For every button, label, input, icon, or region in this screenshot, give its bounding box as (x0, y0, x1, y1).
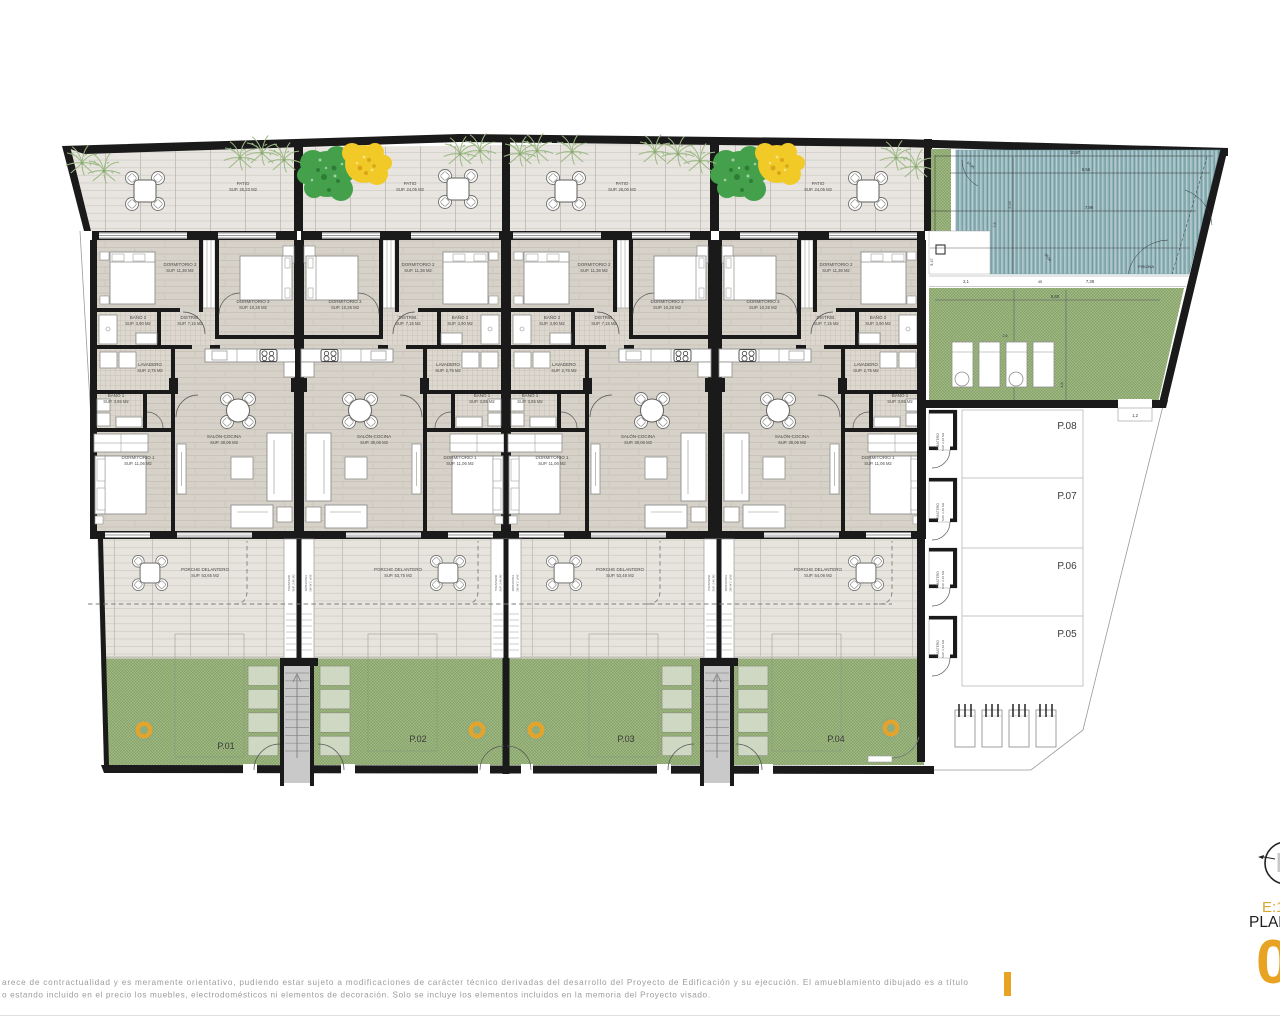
svg-text:BAÑO 1: BAÑO 1 (522, 392, 539, 398)
svg-text:P.06: P.06 (1057, 561, 1077, 572)
svg-text:SUP. 24,05 M2: SUP. 24,05 M2 (804, 187, 833, 192)
svg-text:DORMITORIO 3: DORMITORIO 3 (329, 299, 362, 304)
svg-text:BAÑO 1: BAÑO 1 (474, 392, 491, 398)
svg-text:SUP. 3,90 M2: SUP. 3,90 M2 (865, 321, 891, 326)
svg-text:TRASTERO: TRASTERO (287, 574, 291, 591)
svg-text:PATIO: PATIO (237, 181, 250, 186)
svg-text:SALÓN-COCINA: SALÓN-COCINA (207, 433, 241, 439)
svg-text:7,6: 7,6 (993, 222, 997, 227)
svg-text:SUP. 3,90 M2: SUP. 3,90 M2 (125, 321, 151, 326)
svg-text:BAÑO 1: BAÑO 1 (892, 392, 909, 398)
svg-text:SUP. 7,15 M2: SUP. 7,15 M2 (813, 321, 839, 326)
svg-text:SUP. 10,26 M2: SUP. 10,26 M2 (653, 305, 682, 310)
svg-text:SUP. 11,06 M2: SUP. 11,06 M2 (538, 461, 566, 466)
svg-text:PORCHE DELANTERO: PORCHE DELANTERO (374, 567, 423, 572)
svg-text:TRASTERO: TRASTERO (936, 640, 940, 658)
svg-text:SUP. 30,06 M2: SUP. 30,06 M2 (210, 440, 239, 445)
svg-text:4,6: 4,6 (1060, 382, 1064, 387)
svg-text:SUP. 2,75 M2: SUP. 2,75 M2 (853, 368, 879, 373)
svg-text:PORCHE DELANTERO: PORCHE DELANTERO (181, 567, 230, 572)
svg-text:SALÓN-COCINA: SALÓN-COCINA (775, 433, 809, 439)
svg-text:DISTRIB.: DISTRIB. (398, 315, 417, 320)
svg-text:SUP. 7,15 M2: SUP. 7,15 M2 (177, 321, 203, 326)
svg-text:BAÑO 2: BAÑO 2 (870, 314, 887, 320)
svg-text:SALÓN-COCINA: SALÓN-COCINA (621, 433, 655, 439)
svg-text:BAÑO 2: BAÑO 2 (452, 314, 469, 320)
svg-text:SUP. 53,48 M2: SUP. 53,48 M2 (606, 573, 635, 578)
svg-text:TRASTERO: TRASTERO (494, 574, 498, 591)
svg-text:SUP. 11,36 M2: SUP. 11,36 M2 (404, 268, 432, 273)
svg-text:DISTRIB.: DISTRIB. (180, 315, 199, 320)
svg-text:LAVADERO: LAVADERO (436, 362, 460, 367)
svg-text:DORMITORIO 3: DORMITORIO 3 (651, 299, 684, 304)
svg-text:SUP. 54,06 M2: SUP. 54,06 M2 (804, 573, 833, 578)
svg-text:DORMITORIO 2: DORMITORIO 2 (820, 262, 853, 267)
svg-text:45: 45 (1038, 280, 1042, 284)
svg-text:TRASTERO: TRASTERO (936, 503, 940, 521)
svg-text:SUP. 11,36 M2: SUP. 11,36 M2 (166, 268, 194, 273)
svg-text:PATIO: PATIO (404, 181, 417, 186)
svg-text:SUP. 2,40 M2: SUP. 2,40 M2 (712, 574, 716, 591)
svg-text:DORMITORIO 3: DORMITORIO 3 (747, 299, 780, 304)
svg-text:SUP. 2,40 M2: SUP. 2,40 M2 (941, 433, 945, 452)
svg-text:SUP. 53,75 M2: SUP. 53,75 M2 (384, 573, 413, 578)
svg-text:SUP. 2,40 M2: SUP. 2,40 M2 (292, 574, 296, 591)
svg-text:o estando incluido en el preci: o estando incluido en el precio los mueb… (2, 991, 710, 1000)
svg-text:DORMITORIO 2: DORMITORIO 2 (578, 262, 611, 267)
svg-text:SUP. 30,06 M2: SUP. 30,06 M2 (360, 440, 389, 445)
svg-text:SUP. 10,26 M2: SUP. 10,26 M2 (239, 305, 268, 310)
svg-text:BAÑO 1: BAÑO 1 (108, 392, 125, 398)
svg-text:10,87: 10,87 (1070, 150, 1081, 155)
svg-text:SUP. 53,65 M2: SUP. 53,65 M2 (191, 573, 220, 578)
svg-text:DISTRIB.: DISTRIB. (816, 315, 835, 320)
svg-text:SALÓN-COCINA: SALÓN-COCINA (357, 433, 391, 439)
svg-text:P.07: P.07 (1057, 491, 1077, 502)
svg-text:SUP. 3,65 M2: SUP. 3,65 M2 (887, 399, 913, 404)
svg-text:SUP. 30,06 M2: SUP. 30,06 M2 (778, 440, 807, 445)
svg-text:TRASTERO: TRASTERO (936, 571, 940, 589)
svg-text:SUP. 3,65 M2: SUP. 3,65 M2 (469, 399, 495, 404)
svg-text:SUP. 2,75 M2: SUP. 2,75 M2 (435, 368, 461, 373)
svg-text:SUP. 2,40 M2: SUP. 2,40 M2 (941, 503, 945, 522)
svg-text:DORMITORIO 2: DORMITORIO 2 (402, 262, 435, 267)
svg-text:BAÑO 2: BAÑO 2 (130, 314, 147, 320)
svg-text:SUP. 26,00 M2: SUP. 26,00 M2 (608, 187, 637, 192)
svg-text:PISCINA: PISCINA (1138, 264, 1154, 269)
svg-text:2,1: 2,1 (963, 279, 969, 284)
svg-text:TRASTERO: TRASTERO (304, 575, 308, 592)
svg-text:SUP. 11,06 M2: SUP. 11,06 M2 (864, 461, 892, 466)
svg-text:DORMITORIO 2: DORMITORIO 2 (164, 262, 197, 267)
svg-text:DORMITORIO 1: DORMITORIO 1 (536, 455, 569, 460)
svg-text:SUP. 3,65 M2: SUP. 3,65 M2 (103, 399, 129, 404)
svg-text:9,55: 9,55 (1082, 167, 1091, 172)
svg-text:P.02: P.02 (409, 734, 426, 744)
svg-text:LAVADERO: LAVADERO (552, 362, 576, 367)
svg-text:P.01: P.01 (217, 741, 234, 751)
svg-text:PATIO: PATIO (812, 181, 825, 186)
svg-text:P.03: P.03 (617, 734, 634, 744)
svg-text:SUP. 11,06 M2: SUP. 11,06 M2 (446, 461, 474, 466)
svg-text:TRASTERO: TRASTERO (724, 575, 728, 592)
svg-text:SUP. 3,65 M2: SUP. 3,65 M2 (517, 399, 543, 404)
svg-text:DORMITORIO 1: DORMITORIO 1 (444, 455, 477, 460)
svg-text:TRASTERO: TRASTERO (511, 575, 515, 592)
svg-text:DORMITORIO 1: DORMITORIO 1 (862, 455, 895, 460)
svg-text:2,6: 2,6 (1003, 334, 1008, 338)
svg-text:PORCHE DELANTERO: PORCHE DELANTERO (794, 567, 843, 572)
svg-text:7,99: 7,99 (1085, 205, 1094, 210)
svg-text:TRASTERO: TRASTERO (936, 433, 940, 451)
svg-text:SUP. 11,06 M2: SUP. 11,06 M2 (124, 461, 152, 466)
svg-text:SUP. 24,05 M2: SUP. 24,05 M2 (396, 187, 425, 192)
svg-text:DORMITORIO 3: DORMITORIO 3 (237, 299, 270, 304)
svg-text:SUP. 10,26 M2: SUP. 10,26 M2 (749, 305, 778, 310)
svg-text:SUP. 3,90 M2: SUP. 3,90 M2 (539, 321, 565, 326)
svg-text:SUP. 2,40 M2: SUP. 2,40 M2 (309, 574, 313, 591)
svg-text:arece de contractualidad y es: arece de contractualidad y es meramente … (2, 978, 968, 987)
svg-text:P.04: P.04 (827, 734, 844, 744)
svg-text:02: 02 (1256, 928, 1280, 997)
svg-text:LAVADERO: LAVADERO (854, 362, 878, 367)
svg-text:BAÑO 2: BAÑO 2 (544, 314, 561, 320)
svg-text:7,39: 7,39 (1086, 279, 1095, 284)
svg-text:DORMITORIO 1: DORMITORIO 1 (122, 455, 155, 460)
svg-text:SUP. 2,40 M2: SUP. 2,40 M2 (941, 640, 945, 659)
svg-text:TRASTERO: TRASTERO (707, 574, 711, 591)
svg-text:SUP. 2,75 M2: SUP. 2,75 M2 (551, 368, 577, 373)
svg-text:SUP. 11,36 M2: SUP. 11,36 M2 (822, 268, 850, 273)
svg-text:SUP. 2,40 M2: SUP. 2,40 M2 (941, 571, 945, 590)
svg-text:PORCHE DELANTERO: PORCHE DELANTERO (596, 567, 645, 572)
svg-text:P.08: P.08 (1057, 421, 1077, 432)
svg-text:SUP. 25,23 M2: SUP. 25,23 M2 (229, 187, 258, 192)
svg-text:SUP. 2,40 M2: SUP. 2,40 M2 (729, 574, 733, 591)
svg-text:SUP. 2,75 M2: SUP. 2,75 M2 (137, 368, 163, 373)
svg-text:5,60: 5,60 (1051, 294, 1060, 299)
svg-text:SUP. 3,90 M2: SUP. 3,90 M2 (447, 321, 473, 326)
svg-text:SUP. 2,40 M2: SUP. 2,40 M2 (499, 574, 503, 591)
svg-text:DISTRIB.: DISTRIB. (594, 315, 613, 320)
svg-text:LAVADERO: LAVADERO (138, 362, 162, 367)
svg-text:SUP. 10,26 M2: SUP. 10,26 M2 (331, 305, 360, 310)
svg-text:SUP. 2,40 M2: SUP. 2,40 M2 (516, 574, 520, 591)
svg-text:SUP. 11,36 M2: SUP. 11,36 M2 (580, 268, 608, 273)
svg-text:SUP. 30,06 M2: SUP. 30,06 M2 (624, 440, 653, 445)
svg-text:1,2: 1,2 (1132, 413, 1138, 418)
svg-text:9,47: 9,47 (930, 258, 934, 265)
svg-text:SUP. 7,15 M2: SUP. 7,15 M2 (395, 321, 421, 326)
svg-text:2,04: 2,04 (1008, 201, 1012, 208)
svg-text:PATIO: PATIO (616, 181, 629, 186)
svg-text:SUP. 7,15 M2: SUP. 7,15 M2 (591, 321, 617, 326)
svg-text:P.05: P.05 (1057, 629, 1077, 640)
